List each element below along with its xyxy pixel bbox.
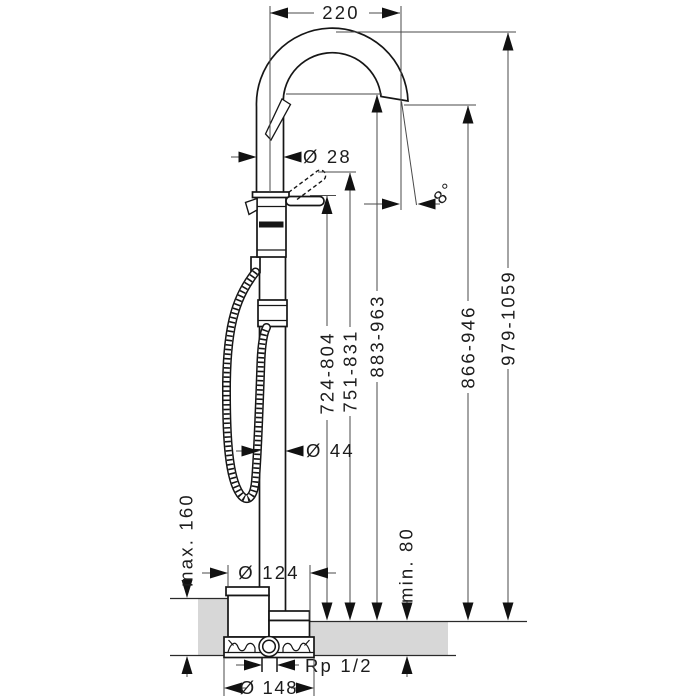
dim-handle-height: 724-804 xyxy=(317,196,338,621)
technical-drawing-canvas: 220 Ø 28 8° 724-804 xyxy=(0,0,700,700)
dim-outlet-height-label: 866-946 xyxy=(458,305,479,388)
escutcheon-plate-right xyxy=(269,611,310,621)
escutcheon-body-right xyxy=(269,621,310,638)
dim-spout-reach: 220 xyxy=(270,2,400,23)
dim-floor-buildup-min-label: min. 80 xyxy=(396,527,417,603)
base-unit xyxy=(224,587,314,672)
dim-handle-raised-height: 751-831 xyxy=(340,173,361,621)
dim-floor-buildup-max: max. 160 xyxy=(176,493,197,677)
escutcheon-body-left xyxy=(228,596,269,638)
dim-spout-underside-height: 883-963 xyxy=(367,95,388,621)
dim-spout-pipe-diameter: Ø 28 xyxy=(231,146,352,167)
dim-spout-angle: 8° xyxy=(364,102,459,210)
dim-pipe-connection-label: Rp 1/2 xyxy=(305,655,373,676)
handle-lever xyxy=(286,197,324,206)
body-cap xyxy=(253,192,290,198)
dim-floor-buildup-max-label: max. 160 xyxy=(176,493,197,587)
dim-handle-height-label: 724-804 xyxy=(317,331,338,414)
dim-spout-underside-height-label: 883-963 xyxy=(367,294,388,377)
dim-handle-raised-height-label: 751-831 xyxy=(340,329,361,412)
dim-basic-set-diameter: Ø 148 xyxy=(224,658,314,698)
body-trim-band xyxy=(259,222,284,228)
shower-holder-hook xyxy=(246,199,258,215)
dim-basic-set-diameter-label: Ø 148 xyxy=(240,677,298,698)
dim-riser-diameter-label: Ø 44 xyxy=(306,440,355,461)
mixer-body xyxy=(246,192,290,257)
hand-shower xyxy=(258,300,287,327)
dim-total-height: 979-1059 xyxy=(498,33,519,621)
escutcheon-plate-left xyxy=(226,587,269,596)
dim-outlet-height: 866-946 xyxy=(458,106,479,621)
floor-buildup-right xyxy=(310,622,448,656)
dim-total-height-label: 979-1059 xyxy=(498,270,519,366)
dim-escutcheon-diameter-label: Ø 124 xyxy=(238,562,299,583)
bath-mixer-dimension-drawing: 220 Ø 28 8° 724-804 xyxy=(0,0,700,700)
dim-spout-pipe-diameter-label: Ø 28 xyxy=(303,146,352,167)
dim-spout-reach-label: 220 xyxy=(322,2,359,23)
